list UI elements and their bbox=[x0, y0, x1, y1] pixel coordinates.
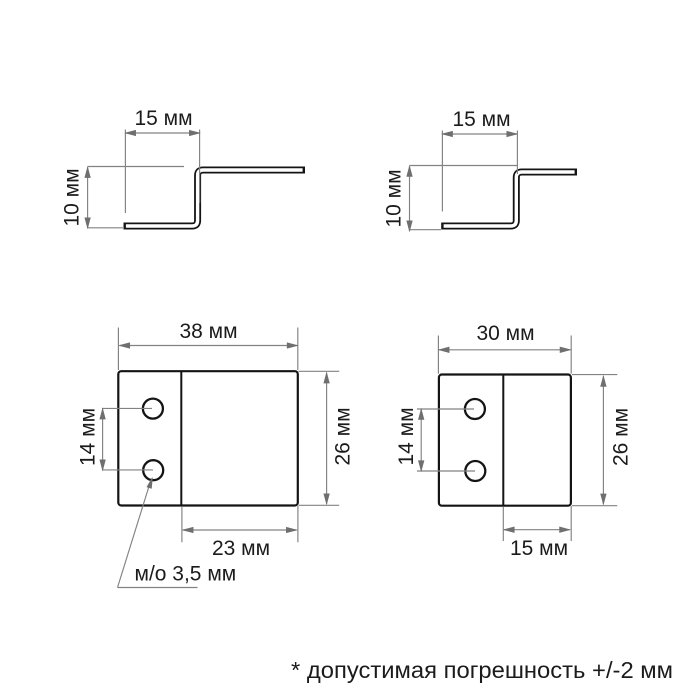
svg-text:15 мм: 15 мм bbox=[452, 108, 510, 131]
svg-text:м/о 3,5 мм: м/о 3,5 мм bbox=[135, 563, 237, 586]
svg-text:30 мм: 30 мм bbox=[476, 322, 534, 345]
svg-text:14 мм: 14 мм bbox=[77, 408, 100, 466]
svg-text:15 мм: 15 мм bbox=[134, 107, 192, 130]
svg-text:26 мм: 26 мм bbox=[610, 408, 633, 466]
svg-text:10 мм: 10 мм bbox=[383, 169, 406, 227]
svg-text:38 мм: 38 мм bbox=[179, 320, 237, 343]
svg-text:14 мм: 14 мм bbox=[395, 407, 418, 465]
svg-text:* допустимая погрешность +/-2: * допустимая погрешность +/-2 мм bbox=[291, 657, 673, 683]
svg-text:23 мм: 23 мм bbox=[212, 537, 270, 560]
svg-text:10 мм: 10 мм bbox=[61, 168, 84, 226]
svg-text:26 мм: 26 мм bbox=[332, 407, 355, 465]
svg-text:15 мм: 15 мм bbox=[510, 537, 568, 560]
